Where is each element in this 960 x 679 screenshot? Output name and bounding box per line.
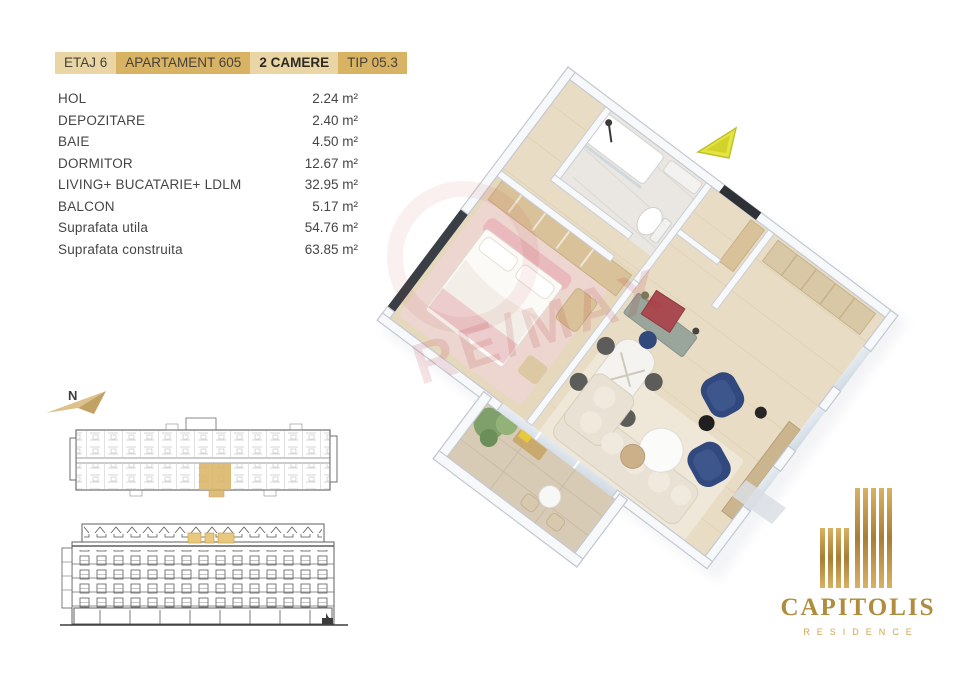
area-row-baie: BAIE 4.50 m² [58,131,358,153]
floor-keyplan-svg [68,416,342,508]
area-row-hol: HOL 2.24 m² [58,88,358,110]
ground-floor [74,608,332,624]
tag-floor: ETAJ 6 [55,52,116,74]
area-row-living: LIVING+ BUCATARIE+ LDLM 32.95 m² [58,174,358,196]
facade-windows [76,550,330,608]
balcony-tab [290,424,302,430]
building-elevation-svg [60,512,348,642]
room-label: LIVING+ BUCATARIE+ LDLM [58,174,241,196]
room-label: BALCON [58,196,115,218]
room-area: 4.50 m² [312,131,358,153]
room-area: 12.67 m² [305,153,358,175]
balcony-tab [264,490,276,496]
logo-title: CAPITOLIS [768,594,948,622]
tag-apartment: APARTAMENT 605 [116,52,250,74]
room-area: 5.17 m² [312,196,358,218]
room-label: HOL [58,88,86,110]
attic-vents [84,525,322,533]
logo-towers-icon [798,486,918,588]
balcony-tab [130,490,142,496]
highlighted-window [205,533,214,543]
highlighted-unit [199,463,231,490]
area-row-depozitare: DEPOZITARE 2.40 m² [58,110,358,132]
area-row-dormitor: DORMITOR 12.67 m² [58,153,358,175]
room-label: BAIE [58,131,90,153]
entrance-marker-icon [698,128,736,158]
north-label: N [68,388,77,403]
room-area: 2.40 m² [312,110,358,132]
north-units [77,431,329,457]
apartment-header: ETAJ 6 APARTAMENT 605 2 CAMERE TIP 05.3 [55,52,407,74]
building-elevation [60,512,348,642]
highlighted-window [218,533,234,543]
total-area: 63.85 m² [305,239,358,261]
room-area: 32.95 m² [305,174,358,196]
highlighted-window [188,533,201,543]
room-label: DEPOZITARE [58,110,145,132]
top-floor-windows [84,534,322,542]
area-row-total-utila: Suprafata utila 54.76 m² [58,217,358,239]
area-row-balcon: BALCON 5.17 m² [58,196,358,218]
highlighted-balcony [209,490,224,497]
floor-keyplan [68,416,342,508]
room-label: DORMITOR [58,153,133,175]
total-label: Suprafata construita [58,239,183,261]
total-area: 54.76 m² [305,217,358,239]
room-area: 2.24 m² [312,88,358,110]
area-table: HOL 2.24 m² DEPOZITARE 2.40 m² BAIE 4.50… [58,88,358,260]
tag-rooms: 2 CAMERE [250,52,338,74]
stair-core [186,418,216,430]
west-wing-step [70,438,76,480]
balcony-tab [166,424,178,430]
area-row-total-construita: Suprafata construita 63.85 m² [58,239,358,261]
total-label: Suprafata utila [58,217,148,239]
east-wing-step [330,436,337,482]
side-balconies [62,548,72,608]
brand-logo: CAPITOLIS RESIDENCE [768,486,948,656]
logo-subtitle: RESIDENCE [768,627,948,637]
